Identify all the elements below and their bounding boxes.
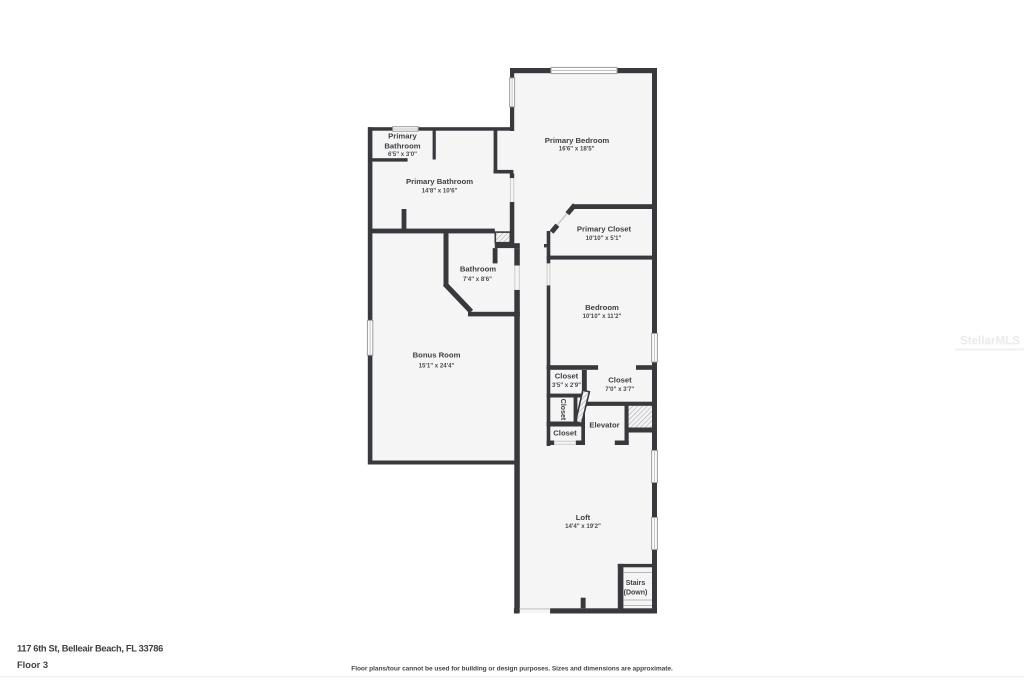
svg-text:Stairs: Stairs bbox=[626, 580, 646, 587]
svg-text:Primary Bathroom: Primary Bathroom bbox=[406, 177, 473, 186]
svg-text:15'1" x 24'4": 15'1" x 24'4" bbox=[419, 363, 455, 370]
svg-text:3'5" x 2'9": 3'5" x 2'9" bbox=[552, 382, 581, 389]
svg-text:Bedroom: Bedroom bbox=[585, 303, 619, 312]
svg-text:Bathroom: Bathroom bbox=[460, 265, 496, 274]
svg-text:Floor 3: Floor 3 bbox=[17, 660, 48, 670]
svg-text:Loft: Loft bbox=[576, 513, 591, 522]
svg-text:Elevator: Elevator bbox=[589, 421, 619, 430]
svg-text:7'4" x 8'6": 7'4" x 8'6" bbox=[463, 276, 492, 283]
svg-text:Bonus Room: Bonus Room bbox=[413, 351, 461, 360]
svg-text:Floor plans/tour cannot be use: Floor plans/tour cannot be used for buil… bbox=[351, 665, 673, 672]
svg-text:7'0" x 3'7": 7'0" x 3'7" bbox=[605, 386, 634, 393]
svg-text:Closet: Closet bbox=[553, 429, 577, 438]
svg-text:14'4" x 19'2": 14'4" x 19'2" bbox=[565, 523, 601, 530]
svg-text:Primary Closet: Primary Closet bbox=[577, 225, 632, 234]
svg-text:StellarMLS: StellarMLS bbox=[960, 335, 1020, 348]
svg-text:Closet: Closet bbox=[555, 372, 579, 381]
svg-text:117 6th St, Belleair Beach, FL: 117 6th St, Belleair Beach, FL 33786 bbox=[17, 644, 163, 654]
svg-text:Bathroom: Bathroom bbox=[384, 142, 420, 151]
svg-text:Primary: Primary bbox=[388, 132, 417, 141]
svg-text:14'8" x 10'6": 14'8" x 10'6" bbox=[422, 187, 458, 194]
svg-text:10'10" x 5'1": 10'10" x 5'1" bbox=[586, 235, 622, 242]
svg-text:16'6" x 18'5": 16'6" x 18'5" bbox=[559, 145, 595, 152]
svg-text:(Down): (Down) bbox=[624, 589, 648, 596]
svg-text:6'5" x 3'0": 6'5" x 3'0" bbox=[388, 151, 417, 158]
svg-text:Primary Bedroom: Primary Bedroom bbox=[545, 136, 610, 145]
svg-text:Closet: Closet bbox=[559, 399, 566, 421]
svg-text:10'10" x 11'2": 10'10" x 11'2" bbox=[583, 313, 622, 320]
svg-text:Closet: Closet bbox=[608, 376, 632, 385]
